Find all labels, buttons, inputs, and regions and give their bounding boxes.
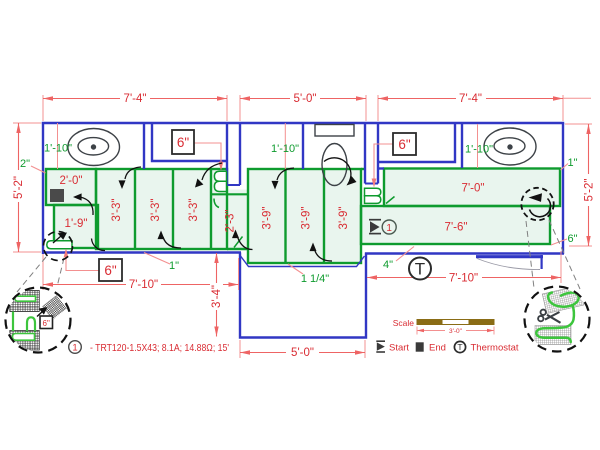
svg-text:1": 1" <box>568 157 578 169</box>
svg-text:5'-0": 5'-0" <box>291 347 314 359</box>
svg-text:Thermostat: Thermostat <box>471 343 519 354</box>
svg-text:3'-9": 3'-9" <box>262 207 274 230</box>
svg-text:6": 6" <box>177 135 190 150</box>
svg-text:7'-0": 7'-0" <box>462 183 485 195</box>
svg-text:1: 1 <box>72 343 77 354</box>
svg-text:1'-10": 1'-10" <box>271 143 299 155</box>
svg-text:Scale: Scale <box>393 318 415 328</box>
svg-text:2": 2" <box>20 158 30 170</box>
svg-text:2'-3": 2'-3" <box>225 210 237 233</box>
svg-text:3'-4": 3'-4" <box>211 285 223 308</box>
svg-text:3'-3": 3'-3" <box>111 199 123 222</box>
svg-text:T: T <box>457 342 462 352</box>
svg-text:Start: Start <box>389 343 409 354</box>
svg-text:6": 6" <box>104 263 117 278</box>
svg-text:3'-9": 3'-9" <box>301 207 313 230</box>
svg-text:5'-2": 5'-2" <box>13 176 25 199</box>
svg-text:End: End <box>429 343 446 354</box>
svg-text:1 1/4": 1 1/4" <box>301 273 329 285</box>
svg-text:7'-4": 7'-4" <box>459 93 482 105</box>
svg-text:5'-2": 5'-2" <box>584 179 596 202</box>
svg-text:3'-3": 3'-3" <box>150 199 162 222</box>
svg-text:2'-0": 2'-0" <box>60 175 83 187</box>
svg-text:5'-0": 5'-0" <box>294 93 317 105</box>
svg-text:1'-9": 1'-9" <box>65 218 88 230</box>
svg-text:4": 4" <box>383 259 393 271</box>
svg-text:7'-10": 7'-10" <box>129 279 158 291</box>
svg-text:1": 1" <box>169 260 179 272</box>
svg-text:3'-3": 3'-3" <box>188 199 200 222</box>
svg-text:T: T <box>415 260 425 279</box>
svg-text:- TRT120-1.5X43; 8.1A; 14.88Ω;: - TRT120-1.5X43; 8.1A; 14.88Ω; 15' <box>90 342 229 354</box>
svg-text:1'-10": 1'-10" <box>44 143 72 155</box>
svg-text:1'-10": 1'-10" <box>465 144 493 156</box>
svg-text:6": 6" <box>43 319 50 328</box>
svg-text:1: 1 <box>386 223 392 234</box>
svg-text:7'-4": 7'-4" <box>124 93 147 105</box>
svg-text:3'-0": 3'-0" <box>449 328 463 335</box>
svg-text:6": 6" <box>398 137 411 152</box>
svg-text:7'-10": 7'-10" <box>449 272 478 284</box>
svg-text:7'-6": 7'-6" <box>445 222 468 234</box>
svg-text:3'-9": 3'-9" <box>338 207 350 230</box>
svg-text:6": 6" <box>568 233 578 245</box>
